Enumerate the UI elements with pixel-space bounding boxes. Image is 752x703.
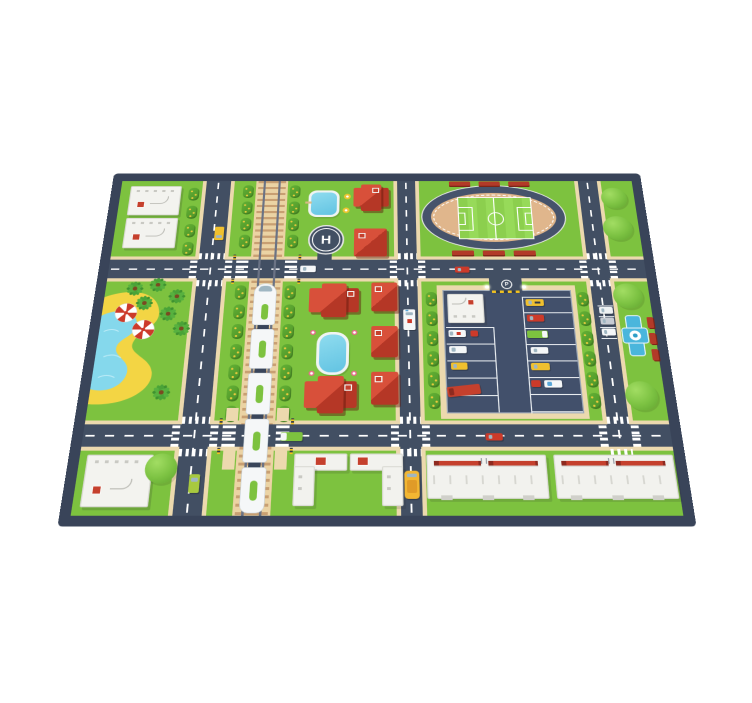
- hedge-bush: [228, 365, 241, 381]
- hedge-bush: [425, 292, 437, 306]
- hedge-bush: [231, 324, 244, 339]
- roof-vents: [298, 475, 308, 478]
- white-car: [300, 266, 316, 273]
- station-platform: [226, 408, 239, 421]
- crosswalk: [199, 253, 225, 259]
- red-roof-house: [371, 282, 397, 311]
- helipad-letter: H: [311, 228, 340, 251]
- building-foot: [523, 495, 535, 500]
- building-foot: [571, 495, 583, 500]
- hedge-bush: [234, 285, 246, 299]
- school-pad: [80, 455, 154, 508]
- crosswalk: [590, 280, 611, 286]
- court-pad: [122, 218, 178, 248]
- crosswalk: [398, 280, 417, 286]
- city-play-mat: H: [57, 174, 696, 527]
- goal-box: [459, 213, 466, 225]
- hedge-bush: [233, 304, 246, 319]
- crosswalk: [178, 449, 207, 456]
- roof-vents: [298, 487, 308, 490]
- parked-car: [600, 318, 615, 325]
- parked-ambulance: [448, 330, 466, 337]
- parked-cart: [470, 331, 478, 337]
- roof-window: [347, 291, 354, 297]
- parking-office: [447, 294, 485, 323]
- parked-taxi: [525, 299, 544, 306]
- hedge-bush: [229, 344, 242, 359]
- hedge-bush: [281, 344, 293, 359]
- duck-pond-deck: [308, 190, 340, 217]
- palm-tree: [148, 278, 167, 292]
- rooftop-line: [110, 479, 133, 490]
- red-parapet: [488, 461, 538, 466]
- crossing-gate-post: [219, 418, 223, 424]
- product-photo-canvas: H: [0, 0, 752, 703]
- hedge-bush: [586, 372, 600, 388]
- roof-window: [375, 376, 383, 382]
- hedge-bush: [427, 331, 439, 346]
- level-crossing-stripes: [284, 260, 297, 279]
- stadium-bench: [478, 182, 499, 186]
- parked-car: [449, 346, 467, 353]
- red-car: [485, 433, 503, 440]
- rooftop-line: [452, 298, 467, 305]
- crossing-gate-post: [291, 418, 294, 424]
- barrier-gate: [492, 291, 520, 293]
- hedge-bush: [282, 324, 294, 339]
- center-circle: [487, 212, 504, 225]
- crosswalk: [398, 253, 417, 259]
- hedge-bush: [428, 393, 440, 409]
- stadium-bench: [452, 251, 474, 256]
- roof-window: [375, 330, 383, 336]
- red-rooftop-hatch: [315, 457, 326, 466]
- red-roof-villa: [317, 376, 344, 413]
- hedge-bush: [428, 372, 440, 388]
- stadium-bench: [449, 182, 470, 186]
- hedge-bush: [280, 365, 293, 381]
- crossing-gate-post: [290, 448, 293, 454]
- hedge-bush: [426, 311, 438, 326]
- roof-window: [344, 384, 352, 390]
- crossing-gate-post: [233, 255, 236, 260]
- red-parapet: [561, 461, 609, 466]
- school-bus: [404, 471, 420, 499]
- stadium-bench: [508, 182, 530, 186]
- swimming-pool-deck: [316, 332, 350, 375]
- hedge-bush: [289, 185, 300, 198]
- roof-vents: [95, 460, 145, 463]
- station-platform: [222, 450, 236, 469]
- parked-car: [531, 363, 550, 370]
- entrance-lamp: [485, 285, 489, 288]
- building-foot: [653, 495, 665, 500]
- crosswalk: [422, 424, 431, 446]
- pink-flowers: [351, 371, 357, 376]
- hedge-bush: [283, 304, 295, 319]
- hedge-bush: [279, 385, 292, 401]
- hedge-bush: [284, 285, 296, 299]
- roof-vents: [132, 222, 170, 224]
- fountain-bench: [651, 349, 659, 360]
- train-car: [242, 419, 269, 463]
- red-rooftop-hatch: [137, 201, 145, 207]
- roof-lamp: [613, 458, 615, 464]
- parked-truck: [527, 331, 548, 339]
- fountain-bench: [649, 333, 657, 344]
- stadium-bench: [514, 251, 536, 256]
- train-car: [239, 467, 267, 513]
- roof-lamp: [481, 458, 483, 464]
- train-nose-car: [252, 283, 277, 325]
- beach-lagoon: [85, 278, 197, 424]
- train-car: [246, 373, 273, 415]
- hedge-bush: [288, 218, 299, 231]
- building-foot: [612, 495, 624, 500]
- soccer-pitch: [457, 197, 534, 239]
- crosswalk: [224, 260, 233, 279]
- station-platform: [274, 450, 287, 469]
- parked-car: [601, 329, 616, 336]
- hedge-bush: [427, 351, 439, 366]
- green-truck: [280, 432, 302, 441]
- stadium-bench: [483, 251, 505, 256]
- level-crossing-stripes: [235, 260, 249, 279]
- red-roof-villa: [321, 283, 347, 317]
- sidewalk: [81, 447, 674, 451]
- palm-tree: [158, 306, 177, 321]
- parked-car: [531, 347, 549, 354]
- hedge-bush: [188, 188, 200, 201]
- hedge-bush: [579, 311, 592, 326]
- goal-box: [525, 213, 533, 225]
- window-row: [561, 475, 671, 484]
- palm-tree: [172, 321, 192, 336]
- red-parapet: [434, 461, 481, 466]
- station-platform: [277, 408, 290, 421]
- red-rooftop-hatch: [132, 234, 141, 240]
- roof-lamp: [486, 458, 488, 464]
- court-pad: [127, 186, 182, 215]
- crossing-gate-post: [297, 279, 300, 284]
- rooftop-line: [150, 196, 169, 204]
- train-windshield: [259, 286, 273, 292]
- red-roof-house: [371, 326, 398, 357]
- roof-vents: [454, 315, 479, 317]
- parked-car: [544, 380, 563, 387]
- hedge-bush: [577, 292, 590, 306]
- hedge-bush: [226, 385, 239, 401]
- swimming-pool-water: [319, 335, 347, 373]
- red-parapet: [616, 461, 666, 466]
- red-rooftop-hatch: [92, 486, 102, 494]
- duck-pond-water: [311, 192, 337, 214]
- train-car: [249, 329, 275, 369]
- palm-tree: [167, 289, 186, 304]
- palm-tree: [151, 384, 171, 401]
- parked-car: [599, 307, 614, 314]
- roof-vents: [137, 190, 174, 192]
- roof-window: [375, 286, 382, 292]
- rooftop-line: [145, 229, 165, 237]
- crossing-gate-post: [217, 448, 221, 454]
- hedge-bush: [581, 331, 594, 346]
- l-building: [382, 466, 404, 506]
- taxi: [214, 227, 225, 240]
- crosswalk: [390, 260, 397, 279]
- shopping-center: [553, 455, 679, 499]
- crossing-gate-post: [298, 255, 301, 260]
- roof-vents: [387, 487, 397, 490]
- crosswalk: [391, 424, 399, 446]
- roof-vents: [387, 475, 397, 478]
- hedge-bush: [238, 235, 250, 249]
- fountain-jet: [633, 333, 638, 337]
- red-rooftop-hatch: [357, 457, 368, 466]
- shopping-center: [426, 455, 549, 499]
- crosswalk: [196, 280, 222, 286]
- hedge-bush: [583, 351, 597, 366]
- building-foot: [441, 495, 453, 500]
- hedge-bush: [287, 235, 299, 249]
- roof-window: [358, 233, 365, 238]
- hedge-bush: [240, 218, 252, 231]
- crosswalk: [606, 417, 629, 424]
- red-roof-house: [371, 372, 399, 405]
- red-rooftop-hatch: [468, 300, 475, 305]
- parked-car: [527, 315, 545, 322]
- parked-cart: [531, 380, 541, 387]
- crosswalk: [400, 449, 421, 456]
- crosswalk: [182, 417, 211, 424]
- crossing-gate-post: [231, 279, 234, 284]
- window-row: [433, 475, 542, 484]
- red-roof-house: [354, 229, 387, 257]
- level-crossing-stripes: [221, 424, 236, 446]
- hedge-bush: [241, 201, 253, 214]
- parking-sign-circle: P: [501, 280, 513, 289]
- roof-window: [372, 188, 379, 193]
- train-roof-stripe: [261, 304, 269, 320]
- hedge-bush: [588, 393, 602, 409]
- crosswalk: [418, 260, 426, 279]
- hedge-bush: [243, 185, 255, 198]
- entrance-lamp: [522, 285, 526, 288]
- red-roof-house: [361, 184, 381, 210]
- crosswalk: [587, 253, 608, 259]
- fountain-bench: [646, 317, 654, 328]
- yellow-flowers: [343, 207, 350, 213]
- parked-car: [451, 362, 468, 369]
- red-car: [455, 267, 470, 273]
- ambulance: [403, 309, 415, 330]
- crosswalk: [400, 417, 421, 424]
- green-car: [188, 474, 200, 493]
- diving-board: [305, 201, 312, 203]
- hedge-bush: [289, 201, 300, 214]
- roof-lamp: [608, 458, 610, 464]
- pink-flowers: [352, 330, 358, 335]
- l-building: [292, 466, 315, 506]
- building-foot: [483, 495, 495, 500]
